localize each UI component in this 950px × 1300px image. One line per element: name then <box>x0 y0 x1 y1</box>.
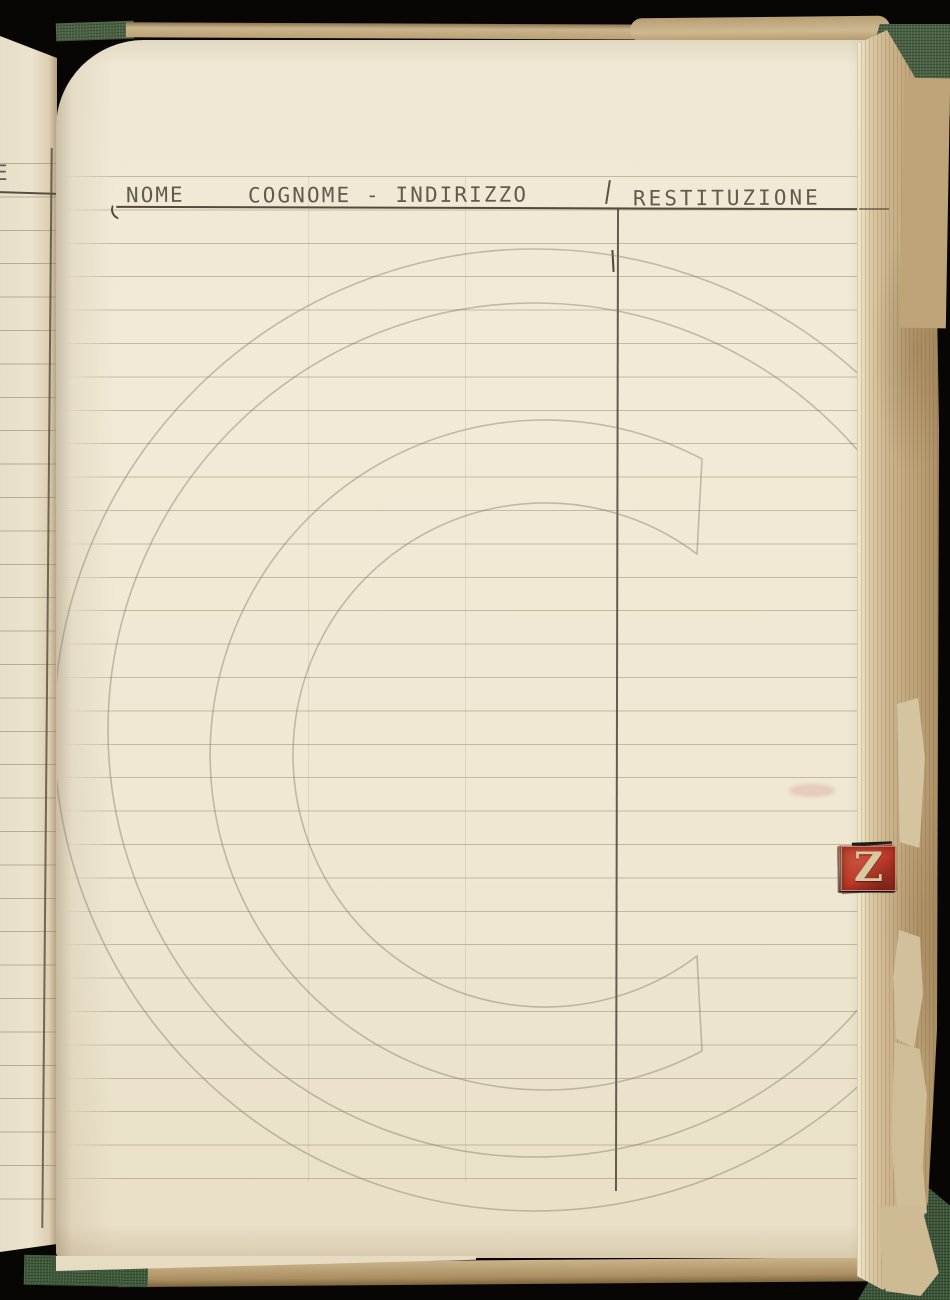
watermark-circle-inner <box>108 303 950 1157</box>
watermark-circle-outer <box>54 249 950 1211</box>
index-tab-z: Z <box>841 846 896 891</box>
worn-paper-patch <box>900 78 950 329</box>
index-tab-letter: Z <box>854 848 883 888</box>
watermark-letter-c <box>210 420 702 1090</box>
stack-pencil-mark <box>859 208 889 210</box>
torn-paper-2 <box>891 1042 927 1220</box>
watermark-c-overlay <box>0 0 950 1300</box>
ledger-photo: E NOME COGNOME - INDIRIZZO RESTITUZIONE <box>0 0 950 1300</box>
